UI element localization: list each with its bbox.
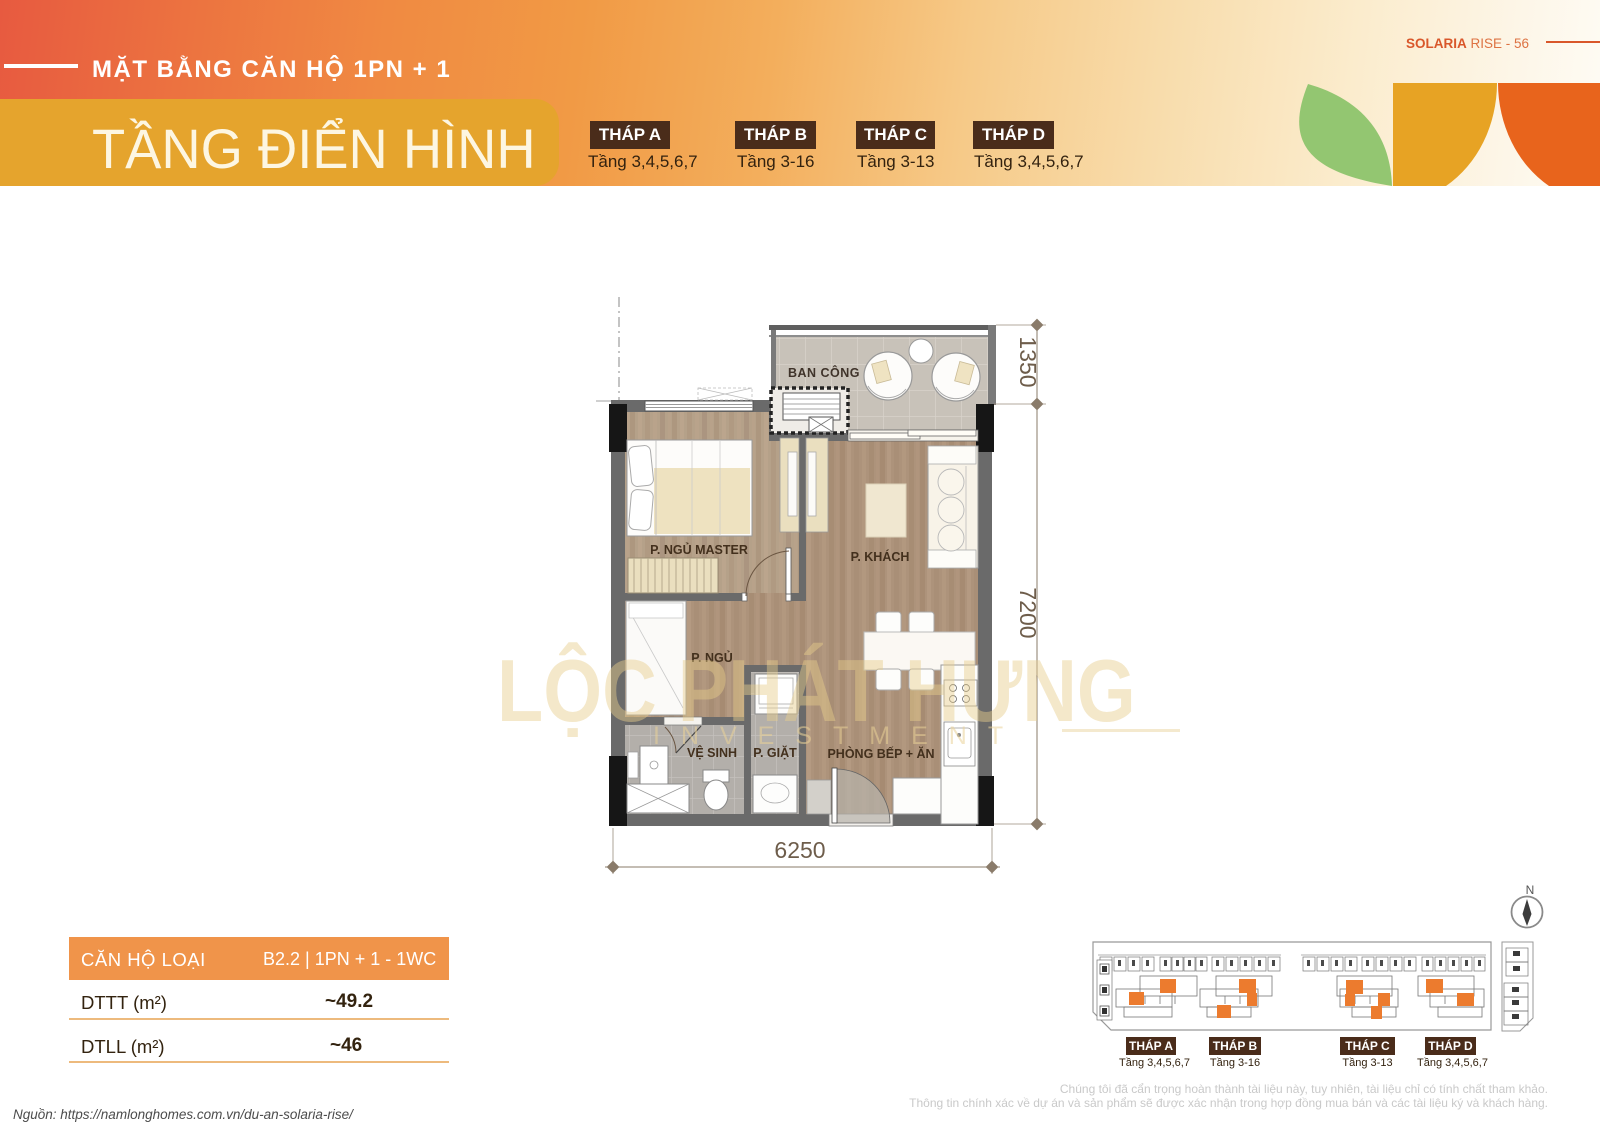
svg-text:N: N [1526, 883, 1535, 897]
svg-text:P. NGỦ MASTER: P. NGỦ MASTER [650, 542, 748, 557]
svg-text:7200: 7200 [1015, 587, 1041, 638]
svg-text:6250: 6250 [774, 837, 825, 863]
svg-text:1350: 1350 [1015, 336, 1041, 387]
svg-text:P. KHÁCH: P. KHÁCH [851, 549, 910, 564]
svg-text:BAN CÔNG: BAN CÔNG [788, 365, 860, 380]
